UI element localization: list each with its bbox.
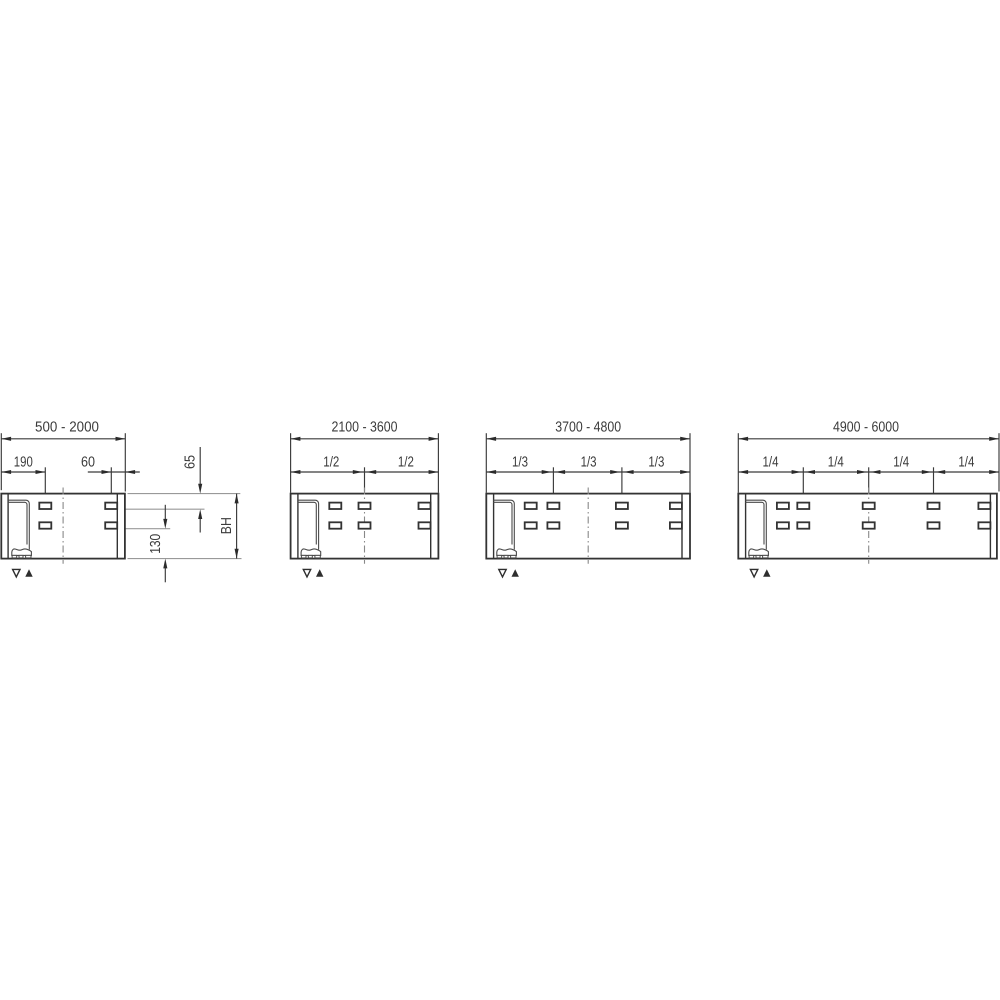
svg-text:1/4: 1/4 bbox=[893, 455, 909, 471]
svg-text:BH: BH bbox=[219, 517, 235, 534]
svg-text:1/3: 1/3 bbox=[648, 455, 664, 471]
svg-text:1/4: 1/4 bbox=[828, 455, 844, 471]
svg-text:190: 190 bbox=[14, 455, 33, 471]
svg-text:500 - 2000: 500 - 2000 bbox=[35, 420, 99, 436]
svg-text:1/4: 1/4 bbox=[958, 455, 974, 471]
svg-text:4900 - 6000: 4900 - 6000 bbox=[833, 420, 899, 436]
svg-text:1/2: 1/2 bbox=[398, 455, 414, 471]
svg-text:1/3: 1/3 bbox=[581, 455, 597, 471]
svg-text:65: 65 bbox=[182, 455, 198, 469]
svg-text:60: 60 bbox=[81, 455, 95, 471]
svg-text:1/2: 1/2 bbox=[323, 455, 339, 471]
svg-text:130: 130 bbox=[148, 534, 164, 554]
svg-text:1/4: 1/4 bbox=[763, 455, 779, 471]
svg-text:1/3: 1/3 bbox=[512, 455, 528, 471]
svg-text:2100 - 3600: 2100 - 3600 bbox=[332, 420, 398, 436]
svg-text:3700 - 4800: 3700 - 4800 bbox=[555, 420, 621, 436]
